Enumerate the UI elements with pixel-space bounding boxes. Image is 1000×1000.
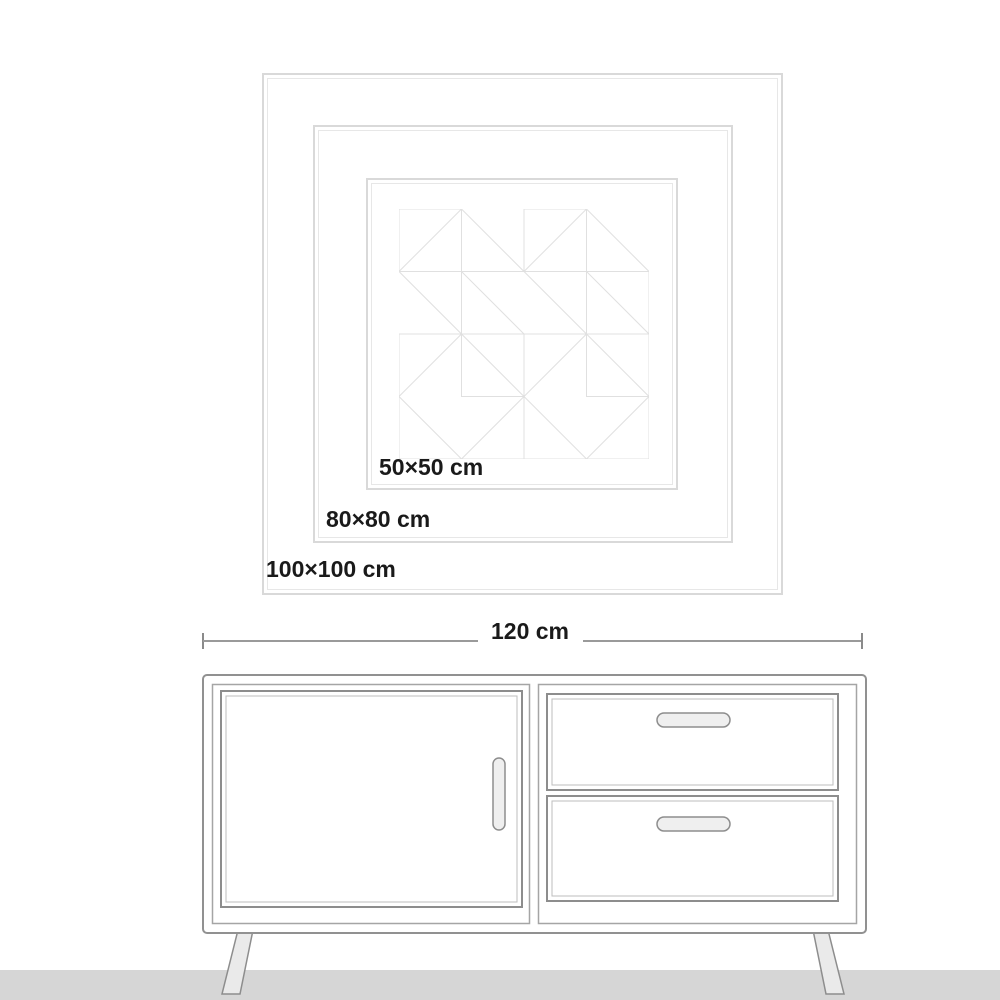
cabinet-leg-right xyxy=(813,930,844,994)
door-handle xyxy=(493,758,505,830)
size-label-80x80: 80×80 cm xyxy=(326,508,430,531)
cabinet-door xyxy=(221,691,522,907)
dimension-line-right xyxy=(583,640,863,642)
sideboard-drawing xyxy=(190,670,880,1000)
dimension-line-left xyxy=(203,640,478,642)
size-label-50x50: 50×50 cm xyxy=(379,456,483,479)
size-label-100x100: 100×100 cm xyxy=(266,558,396,581)
drawer-bottom-handle xyxy=(657,817,730,831)
product-dimensions-diagram: 50×50 cm 80×80 cm 100×100 cm 120 cm xyxy=(0,0,1000,1000)
cabinet-leg-left xyxy=(222,930,253,994)
drawer-top xyxy=(547,694,838,790)
geometric-triangle-pattern-icon xyxy=(399,209,649,459)
drawer-top-handle xyxy=(657,713,730,727)
dimension-tick-right xyxy=(861,633,863,649)
drawer-bottom xyxy=(547,796,838,901)
